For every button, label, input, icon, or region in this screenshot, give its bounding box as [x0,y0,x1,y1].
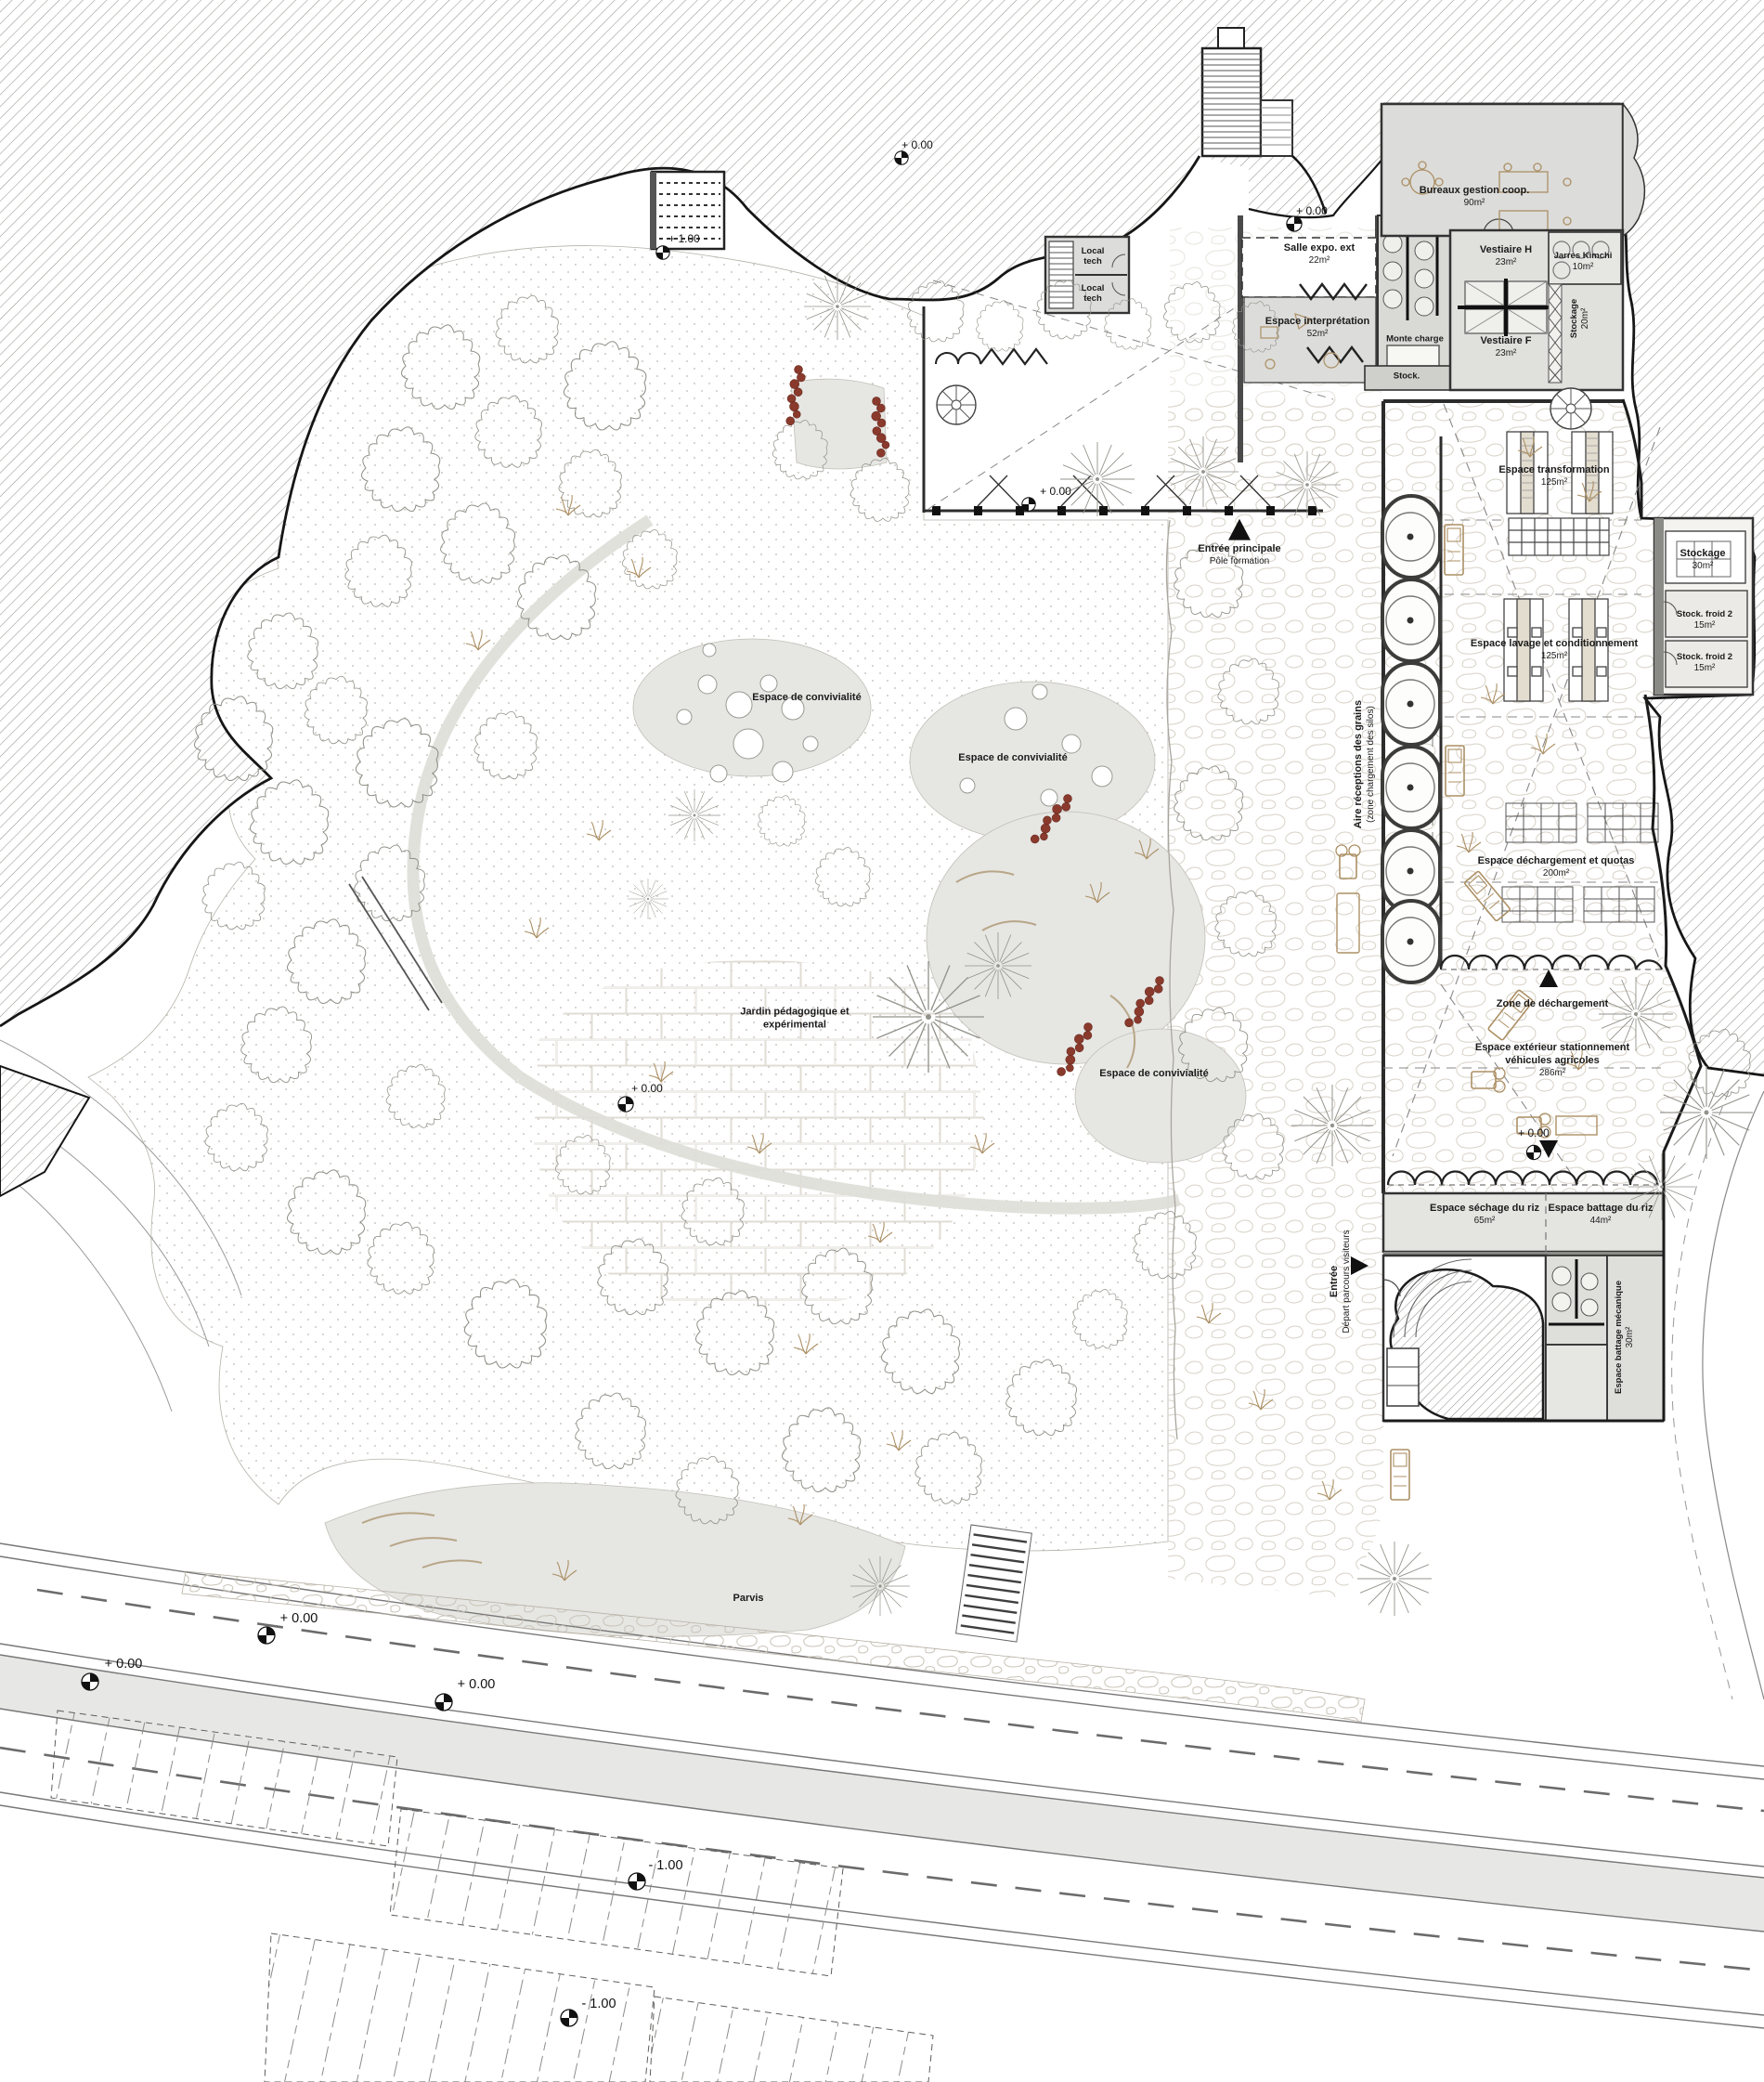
benchmark-icon [656,246,669,259]
benchmark-icon [435,1694,452,1711]
room-label-stockage-30: Stockage30m² [1680,548,1726,572]
room-label-battage-riz: Espace battage du riz44m² [1548,1203,1653,1227]
room-label-bureaux: Bureaux gestion coop.90m² [1420,185,1530,209]
label-zone-dechargement: Zone de déchargement [1497,998,1608,1011]
room-label-dechargement-quotas: Espace déchargement et quotas200m² [1478,855,1635,879]
room-label-vestiaire-h: Vestiaire H23m² [1480,244,1532,268]
spiral-stair-2 [1550,388,1591,429]
level-marker-text: + 0.00 [458,1678,496,1692]
room-label-interpretation: Espace interprétation52m² [1265,316,1369,340]
room-label-local-tech-2: Local tech [1073,284,1112,305]
benchmark-icon [618,1097,633,1112]
site-plan: Bureaux gestion coop.90m² Salle expo. ex… [0,0,1764,2082]
level-marker-text: + 1.00 [668,233,700,244]
room-label-lavage: Espace lavage et conditionnement125m² [1471,638,1638,662]
level-marker-text: + 0.00 [280,1612,318,1626]
benchmark-icon [258,1627,275,1644]
work-table [1509,518,1609,555]
room-label-local-tech-1: Local tech [1073,247,1112,267]
room-label-stockage-20: Stockage20m² [1570,299,1590,338]
ground-textures [88,228,1751,1636]
room-label-stock-froid-2a: Stock. froid 215m² [1677,610,1732,631]
room-label-stationnement: Espace extérieur stationnementvéhicules … [1475,1042,1629,1079]
level-marker-text: + 0.00 [105,1658,143,1672]
label-parvis: Parvis [733,1593,763,1606]
room-label-stock: Stock. [1394,372,1420,383]
benchmark-icon [1022,498,1035,511]
room-label-transformation: Espace transformation125m² [1498,464,1609,488]
level-marker-text: + 0.00 [1518,1127,1550,1139]
label-entree-principale: Entrée principalePôle formation [1198,543,1280,567]
label-jardin-pedagogique: Jardin pédagogique etexpérimental [740,1006,849,1032]
label-aire-receptions: Aire réceptions des grains(zone chargeme… [1353,700,1377,828]
benchmark-icon [629,1873,645,1890]
room-label-sechage-riz: Espace séchage du riz65m² [1430,1203,1539,1227]
label-convivialite-3: Espace de convivialité [1099,1068,1208,1081]
level-marker-text: + 0.00 [1296,205,1328,216]
level-marker-text: + 0.00 [631,1083,663,1094]
level-marker-text: + 0.00 [1040,486,1071,497]
room-label-jarres-kimchi: Jarres Kimchi10m² [1554,252,1613,272]
room-label-monte-charge: Monte charge [1386,335,1444,345]
label-entree-visiteurs: EntréeDépart parcours visiteurs [1329,1230,1353,1333]
level-marker-text: - 1.00 [581,1997,616,2011]
room-label-vestiaire-f: Vestiaire F23m² [1480,335,1531,359]
benchmark-icon [895,151,908,164]
room-label-salle-expo: Salle expo. ext22m² [1284,242,1355,267]
core-block [1365,215,1450,390]
level-marker-text: - 1.00 [648,1859,682,1873]
benchmark-icon [82,1673,98,1690]
benchmark-icon [561,2010,577,2026]
bureaux-room [1381,104,1644,240]
benchmark-icon [1287,216,1302,231]
label-convivialite-1: Espace de convivialité [752,692,861,705]
benchmark-icon [1526,1145,1540,1159]
room-label-battage-mecanique: Espace battage mécanique30m² [1615,1281,1635,1394]
room-label-stock-froid-2b: Stock. froid 215m² [1677,653,1732,673]
spiral-stair [937,385,976,424]
level-marker-text: + 0.00 [901,139,933,150]
label-convivialite-2: Espace de convivialité [958,752,1067,765]
site-plan-drawing [0,0,1764,2082]
